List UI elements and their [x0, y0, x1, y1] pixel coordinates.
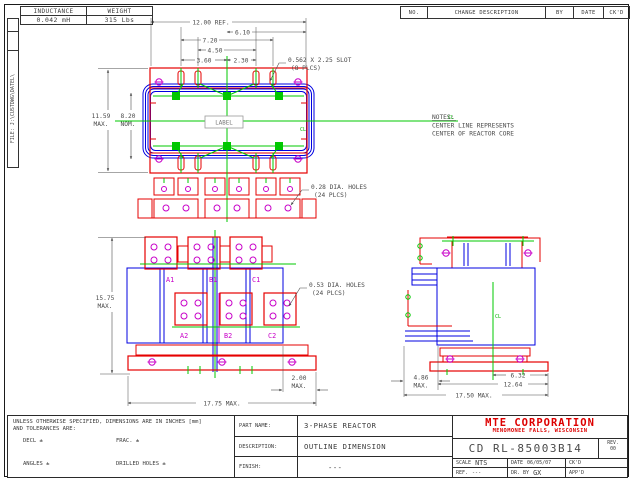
rev-col-no: NO.	[401, 7, 428, 18]
scale-label: SCALE	[456, 460, 471, 466]
description-row: DESCRIPTION: OUTLINE DIMENSION	[235, 437, 452, 458]
drby-label: DR. BY	[511, 470, 529, 476]
inductance-value: 0.042 mH	[21, 16, 87, 24]
rev-col-ckd: CK'D	[604, 7, 629, 18]
ckd-label: CK'D	[569, 460, 581, 466]
drby-cell: DR. BY GX	[508, 468, 566, 477]
title-block: UNLESS OTHERWISE SPECIFIED, DIMENSIONS A…	[7, 415, 628, 478]
spec-table: INDUCTANCE WEIGHT 0.042 mH 315 Lbs	[20, 6, 153, 25]
approval-grid: SCALE NTS DATE 06/05/07 CK'D REF. --- DR…	[453, 459, 627, 477]
file-path-label: FILE: J:\CUSTDWG\DATEL\	[10, 74, 16, 143]
company-name: MTE CORPORATION	[453, 418, 627, 429]
sheet-border	[4, 4, 629, 477]
tolerance-angles: ANGLES ±	[23, 461, 50, 467]
finish-value: ---	[298, 457, 452, 477]
ref-cell: REF. ---	[453, 468, 508, 477]
rev-value: 00	[599, 447, 627, 453]
ref-label: REF.	[456, 470, 468, 476]
description-label: DESCRIPTION:	[235, 437, 298, 457]
rev-col-change-description: CHANGE DESCRIPTION	[428, 7, 546, 18]
tolerance-note-1: UNLESS OTHERWISE SPECIFIED, DIMENSIONS A…	[13, 419, 202, 425]
weight-header: WEIGHT	[87, 7, 152, 16]
scale-cell: SCALE NTS	[453, 459, 508, 468]
tolerance-note-2: AND TOLERANCES ARE:	[13, 426, 76, 432]
file-strip-cell	[8, 32, 18, 51]
date-cell: DATE 06/05/07	[508, 459, 566, 468]
tolerance-block: UNLESS OTHERWISE SPECIFIED, DIMENSIONS A…	[8, 416, 235, 477]
drby-value: GX	[533, 469, 541, 477]
tolerance-decimal: DECL ±	[23, 438, 43, 444]
appd-label: APP'D	[569, 470, 584, 476]
file-path-strip: FILE: J:\CUSTDWG\DATEL\	[7, 18, 19, 168]
revision-cell: REV. 00	[598, 439, 627, 458]
finish-row: FINISH: ---	[235, 457, 452, 477]
part-name-row: PART NAME: 3-PHASE REACTOR	[235, 416, 452, 437]
file-strip-cell	[8, 19, 18, 32]
date-value: 06/05/07	[527, 460, 551, 466]
drawing-number: CD RL-85003B14	[453, 439, 598, 458]
part-info-block: PART NAME: 3-PHASE REACTOR DESCRIPTION: …	[235, 416, 453, 477]
tolerance-drilled-holes: DRILLED HOLES ±	[116, 461, 166, 467]
drawing-sheet: CL CL LABEL 1	[0, 0, 635, 482]
drawing-number-row: CD RL-85003B14 REV. 00	[453, 439, 627, 459]
ref-value: ---	[472, 470, 481, 476]
inductance-header: INDUCTANCE	[21, 7, 87, 16]
ckd-cell: CK'D	[566, 459, 627, 468]
company-city: MENOMONEE FALLS, WISCONSIN	[453, 429, 627, 434]
revision-table: NO. CHANGE DESCRIPTION BY DATE CK'D	[400, 6, 630, 19]
file-strip-cell: FILE: J:\CUSTDWG\DATEL\	[8, 51, 18, 167]
appd-cell: APP'D	[566, 468, 627, 477]
part-name-value: 3-PHASE REACTOR	[298, 416, 452, 436]
tolerance-fraction: FRAC. ±	[116, 438, 139, 444]
description-value: OUTLINE DIMENSION	[298, 437, 452, 457]
finish-label: FINISH:	[235, 457, 298, 477]
part-name-label: PART NAME:	[235, 416, 298, 436]
scale-value: NTS	[475, 459, 487, 467]
company-header: MTE CORPORATION MENOMONEE FALLS, WISCONS…	[453, 416, 627, 439]
rev-col-by: BY	[546, 7, 574, 18]
weight-value: 315 Lbs	[87, 16, 152, 24]
company-block: MTE CORPORATION MENOMONEE FALLS, WISCONS…	[453, 416, 627, 477]
rev-col-date: DATE	[574, 7, 604, 18]
date-label: DATE	[511, 460, 523, 466]
